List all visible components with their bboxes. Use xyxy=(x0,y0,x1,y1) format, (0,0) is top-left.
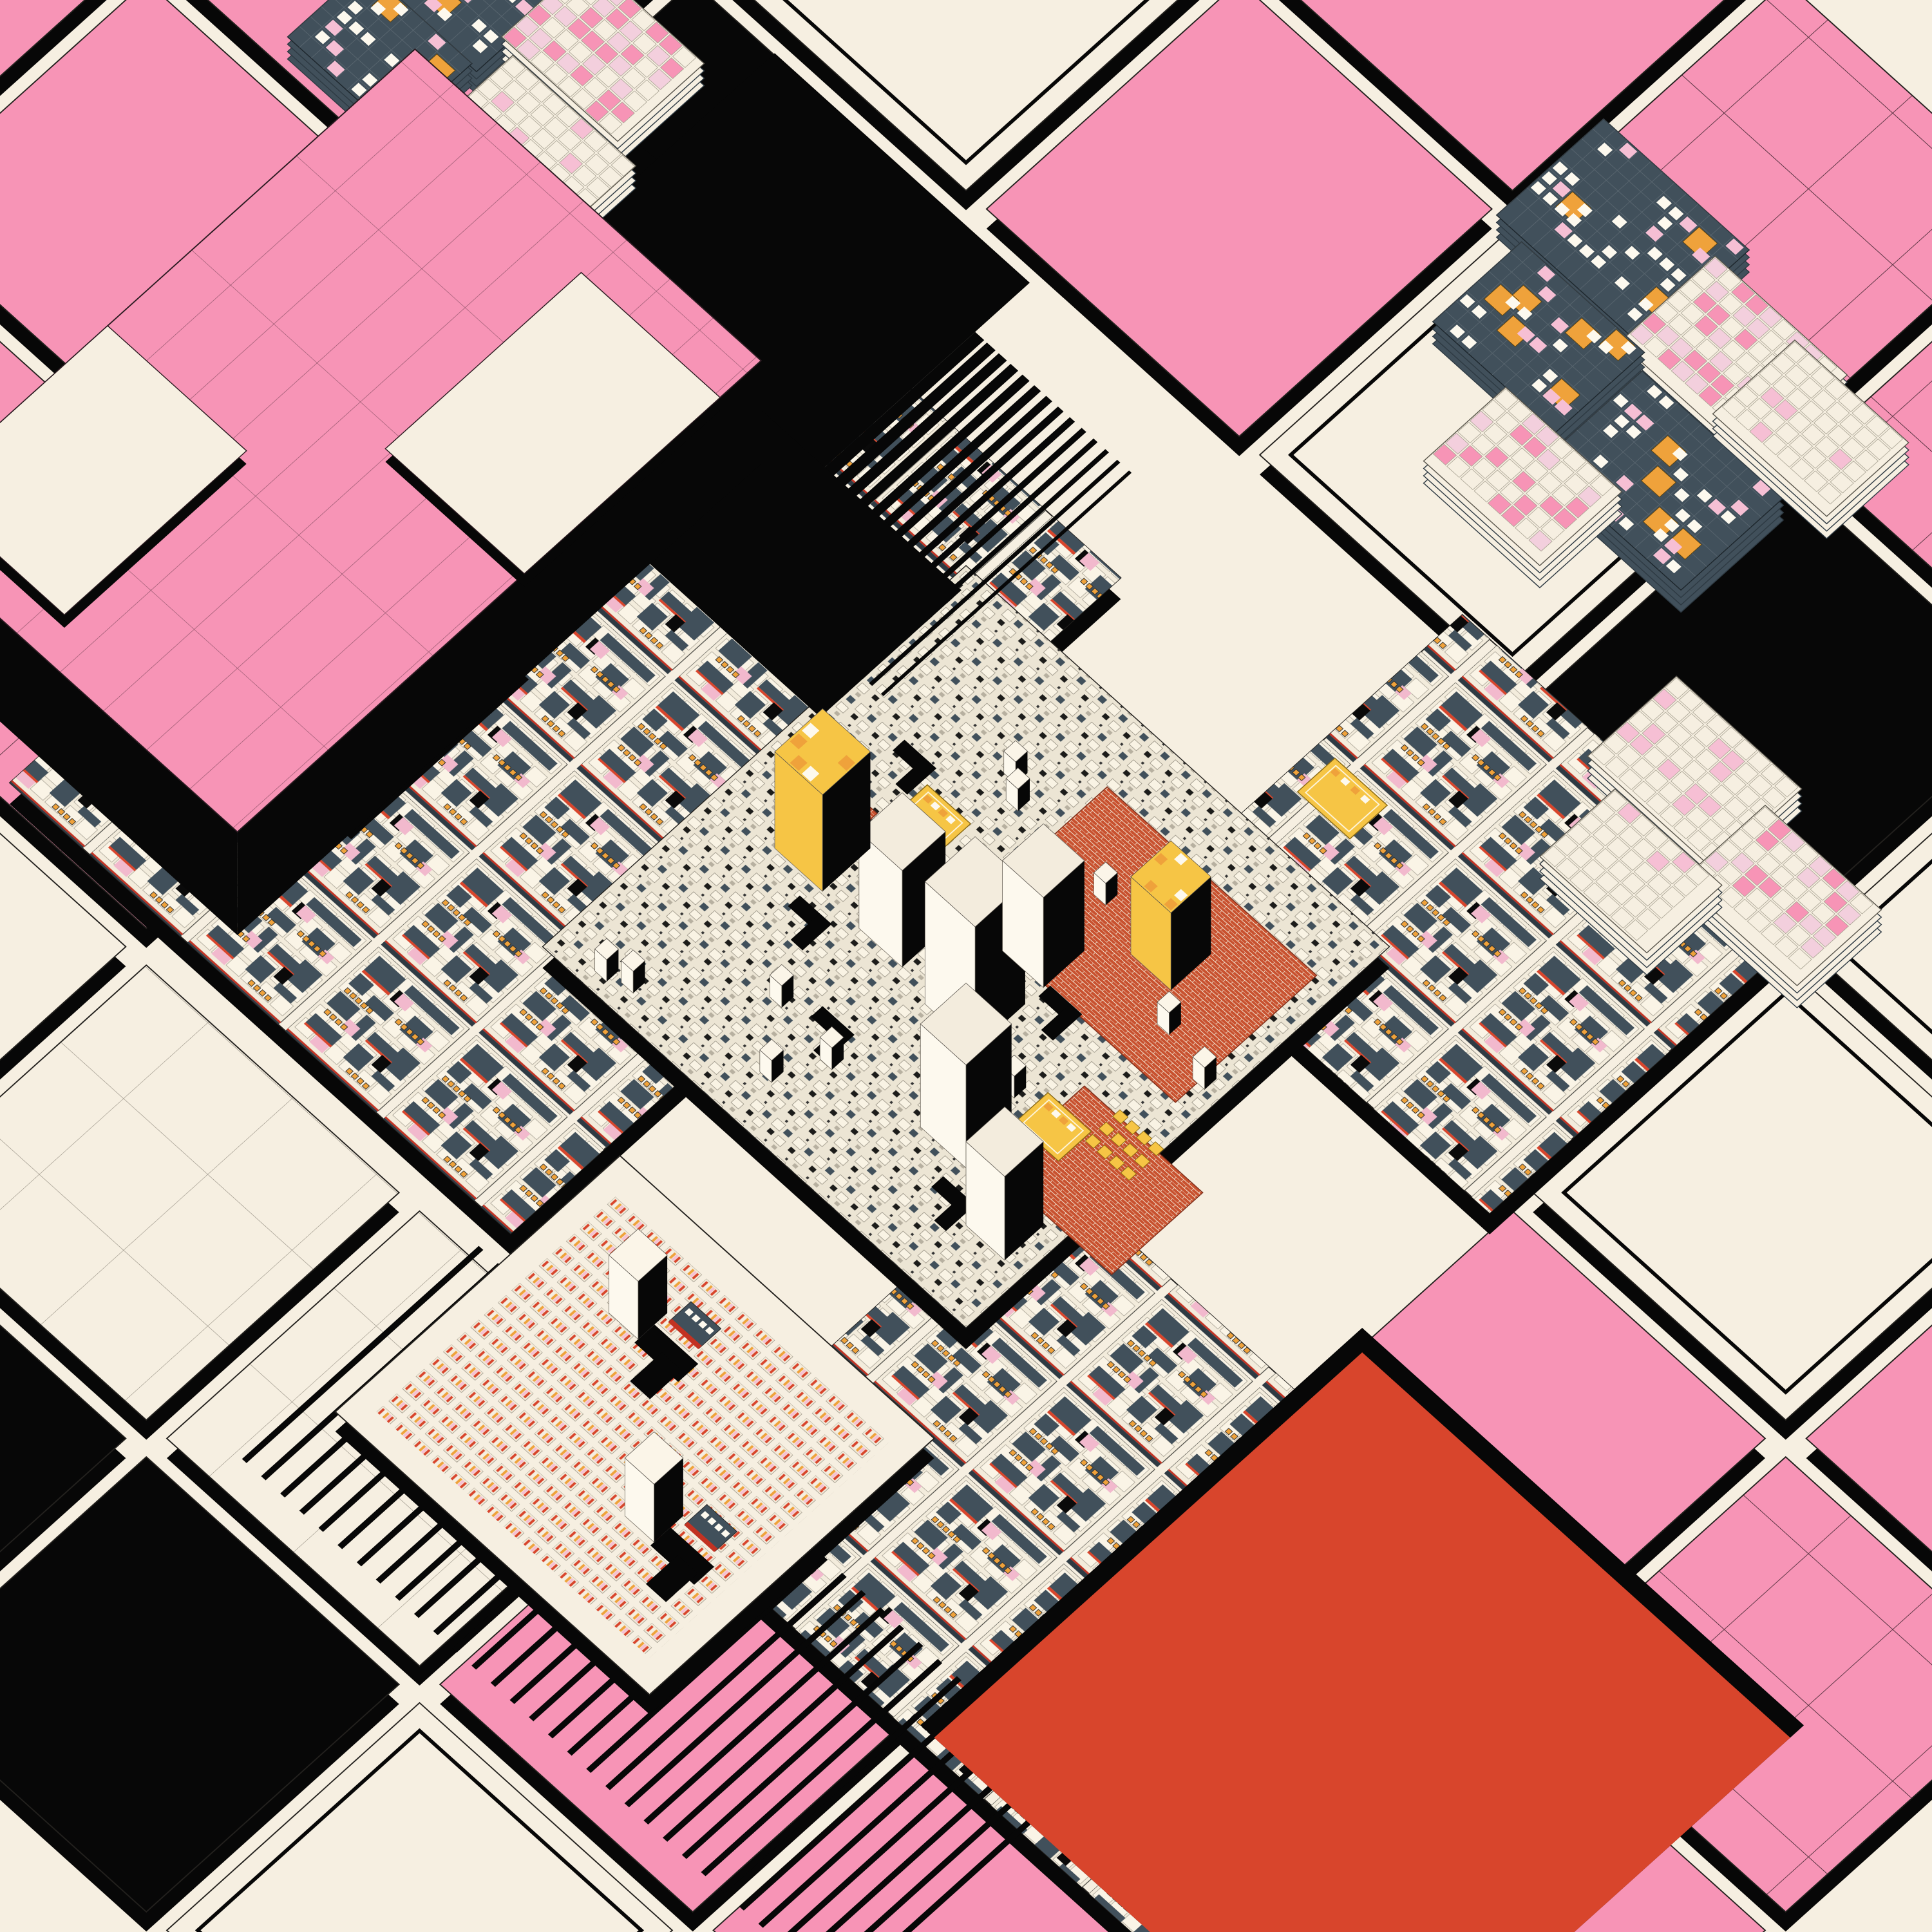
artwork-root xyxy=(0,0,1932,1932)
world-plane xyxy=(0,0,1932,1932)
artwork-canvas xyxy=(0,0,1932,1932)
